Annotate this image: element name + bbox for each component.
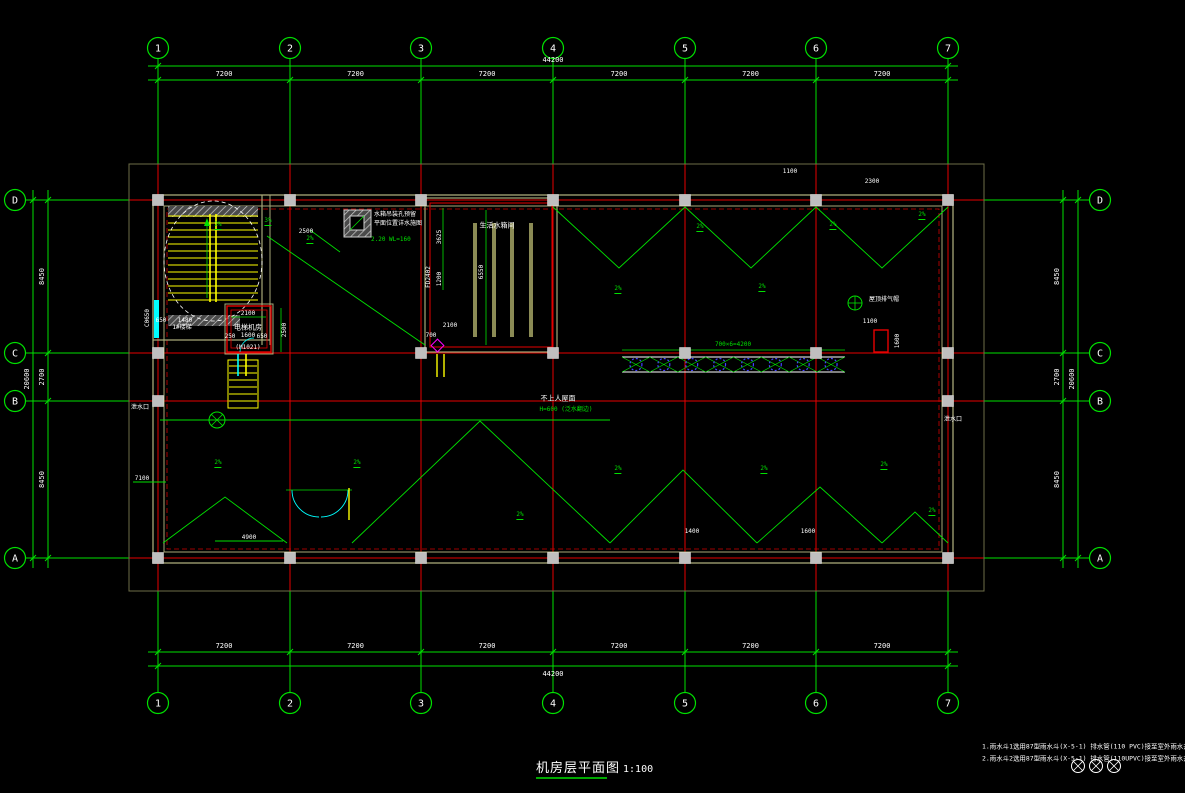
annotation-label: 不上人屋面 [541, 396, 576, 403]
column-block [153, 195, 164, 206]
column-block [680, 195, 691, 206]
slope-label: 2% [880, 462, 887, 470]
dim-text: 7200 [742, 642, 759, 650]
annotation-label: (M1021) [235, 345, 260, 351]
tank-slat [492, 223, 496, 337]
annotation-label: H=600 (泛水翻边) [540, 407, 593, 413]
annotation-label: 6550 [479, 265, 485, 279]
annotation-label: 700×6=4200 [715, 342, 751, 348]
dim-text: 8450 [38, 471, 46, 488]
grid-bubble-label: A [1097, 554, 1103, 565]
dim-text: 8450 [1053, 268, 1061, 285]
column-block [811, 348, 822, 359]
dim-text: 7200 [479, 642, 496, 650]
column-block [548, 553, 559, 564]
dim-text: 7200 [611, 642, 628, 650]
stair-treads [168, 216, 258, 300]
annotation-label: 平面位置详水施图 [374, 221, 422, 227]
annotation-label: 2100 [241, 311, 255, 317]
column-block [548, 195, 559, 206]
slope-label: 2% [696, 224, 703, 232]
dim-text: 2700 [1053, 369, 1061, 386]
annotation-label: 屋顶排气帽 [869, 297, 899, 303]
annotation-label: 2100 [443, 323, 457, 329]
annotation-label: 650 [257, 334, 268, 340]
slope-label: 2% [353, 460, 360, 468]
annotation-label: 650 [156, 318, 167, 324]
dim-text: 7200 [216, 70, 233, 78]
tank-slat [510, 223, 514, 337]
roof-valley-line [685, 207, 816, 268]
roof-valley-line [163, 497, 287, 543]
stair-landing-hatch [168, 206, 258, 217]
grid-bubble-label: 6 [813, 699, 819, 710]
slope-label: 2% [829, 222, 836, 230]
dim-text: 7200 [874, 642, 891, 650]
column-block [153, 396, 164, 407]
annotation-label: 电梯机房 [234, 325, 262, 332]
dim-text: 8450 [1053, 471, 1061, 488]
annotation-label: 1400 [685, 529, 699, 535]
annotation-label: 700 [426, 333, 437, 339]
slope-label: 2% [918, 212, 925, 220]
hoisting-hole [344, 210, 371, 237]
grid-bubble-label: 1 [155, 699, 161, 710]
annotation-label: 2300 [865, 179, 879, 185]
grid-lines-layer [5, 38, 1111, 714]
stair-arrow-head [204, 218, 210, 226]
column-block [548, 348, 559, 359]
annotation-label: 1100 [783, 169, 797, 175]
slope-label: 2% [758, 284, 765, 292]
general-note-2: 2.雨水斗2选用87型雨水斗(X-5-1) 排水管(110UPVC)接至室外雨水… [982, 754, 1185, 763]
tank-slat [529, 223, 533, 337]
drawing-title: 机房层平面图1:100 [536, 757, 653, 776]
column-block [416, 348, 427, 359]
annotation-label: 7100 [135, 476, 149, 482]
dim-text: 20600 [23, 368, 31, 389]
grid-bubble-label: C [1097, 349, 1103, 360]
annotation-label: C0650 [145, 309, 151, 327]
access-ladder-rungs [229, 366, 257, 408]
slope-label: 2% [614, 466, 621, 474]
grid-bubble-label: 4 [550, 44, 556, 55]
column-block [943, 195, 954, 206]
roof-valley-line [553, 207, 685, 268]
roof-valley-line [757, 487, 882, 543]
dim-text: 7200 [347, 642, 364, 650]
slope-label: 2% [614, 286, 621, 294]
column-block [680, 553, 691, 564]
annotation-label: 250 [225, 334, 236, 340]
annotation-label: 1600 [895, 334, 901, 348]
dim-text: 2700 [38, 369, 46, 386]
column-block [943, 396, 954, 407]
dim-text: 7200 [347, 70, 364, 78]
dim-text: 7200 [874, 70, 891, 78]
drawing-scale: 1:100 [623, 764, 653, 775]
stair-opening-dashed-ellipse [164, 201, 262, 321]
slope-label: 2% [306, 236, 313, 244]
grid-bubble-label: B [1097, 397, 1103, 408]
dim-text: 20600 [1068, 368, 1076, 389]
annotation-label: 1#楼梯 [172, 325, 191, 331]
grid-bubble-label: 7 [945, 699, 951, 710]
slope-label: 2% [760, 466, 767, 474]
dim-text: 44200 [542, 670, 563, 678]
annotation-label: 2.20 WL=160 [371, 237, 411, 243]
column-block [811, 553, 822, 564]
column-block [153, 553, 164, 564]
door-swing-arc [292, 490, 319, 517]
annotation-label: 泄水口 [944, 417, 962, 423]
roof-valley-line [882, 512, 948, 543]
slope-label: 2% [516, 512, 523, 520]
dim-text: 8450 [38, 268, 46, 285]
dim-text: 7200 [479, 70, 496, 78]
annotation-label: 1600 [241, 333, 255, 339]
grid-bubble-label: A [12, 554, 18, 565]
annotation-label: 生活水箱间 [480, 223, 515, 230]
grid-bubble-label: D [12, 196, 18, 207]
grid-bubble-label: B [12, 397, 18, 408]
annotation-label: 1200 [437, 272, 443, 286]
dim-text: 7200 [742, 70, 759, 78]
leader-line [310, 230, 340, 252]
column-block [943, 553, 954, 564]
roof-slope-lines [133, 207, 948, 543]
annotation-label: 泄水口 [131, 405, 149, 411]
column-block [811, 195, 822, 206]
annotation-label: 1100 [863, 319, 877, 325]
annotation-label: 3625 [437, 230, 443, 244]
column-block [416, 195, 427, 206]
general-note-1: 1.雨水斗1选用87型雨水斗(X-5-1) 排水管(110 PVC)接至室外雨水… [982, 742, 1185, 751]
grid-bubble-label: 5 [682, 699, 688, 710]
annotation-label: 4900 [242, 535, 256, 541]
elevator-machine-room [225, 230, 340, 376]
grid-bubble-label: 2 [287, 44, 293, 55]
column-block [416, 553, 427, 564]
annotation-label: 1600 [801, 529, 815, 535]
drain-diamond-symbol [431, 339, 444, 352]
tank-slat [473, 223, 477, 337]
roof-valley-line [816, 207, 948, 268]
dim-text: 7200 [611, 70, 628, 78]
annotation-label: 水箱吊装孔预留 [374, 212, 416, 218]
column-block [285, 553, 296, 564]
dim-text: 7200 [216, 642, 233, 650]
slope-label: 3% [264, 218, 271, 226]
column-block [285, 195, 296, 206]
annotation-label: 1480 [178, 318, 192, 324]
grid-bubble-label: 5 [682, 44, 688, 55]
vent-shaft [874, 330, 888, 352]
grid-bubble-label: 3 [418, 44, 424, 55]
column-block [943, 348, 954, 359]
roof-valley-line [352, 421, 610, 543]
annotation-label: 2500 [282, 323, 288, 337]
grid-bubble-label: D [1097, 196, 1103, 207]
roof-valley-line [610, 470, 757, 543]
drawing-title-text: 机房层平面图 [536, 761, 620, 776]
grid-bubble-label: 2 [287, 699, 293, 710]
roof-diagonal [267, 236, 425, 345]
dim-text: 44200 [542, 56, 563, 64]
annotation-label: FD2402 [426, 266, 432, 288]
door-swing-arc [321, 490, 348, 517]
grid-bubble-label: C [12, 349, 18, 360]
cad-viewport[interactable]: 11223344556677DDCCBBAA720072007200720072… [0, 0, 1185, 793]
column-block [153, 348, 164, 359]
grid-bubble-label: 3 [418, 699, 424, 710]
column-block [680, 348, 691, 359]
slope-label: 2% [214, 460, 221, 468]
grid-bubble-label: 7 [945, 44, 951, 55]
grid-bubble-label: 1 [155, 44, 161, 55]
slope-label: 2% [214, 222, 221, 230]
drawing-canvas[interactable]: 11223344556677DDCCBBAA720072007200720072… [0, 0, 1185, 793]
grid-bubble-label: 4 [550, 699, 556, 710]
slope-label: 2% [928, 508, 935, 516]
grid-bubble-label: 6 [813, 44, 819, 55]
